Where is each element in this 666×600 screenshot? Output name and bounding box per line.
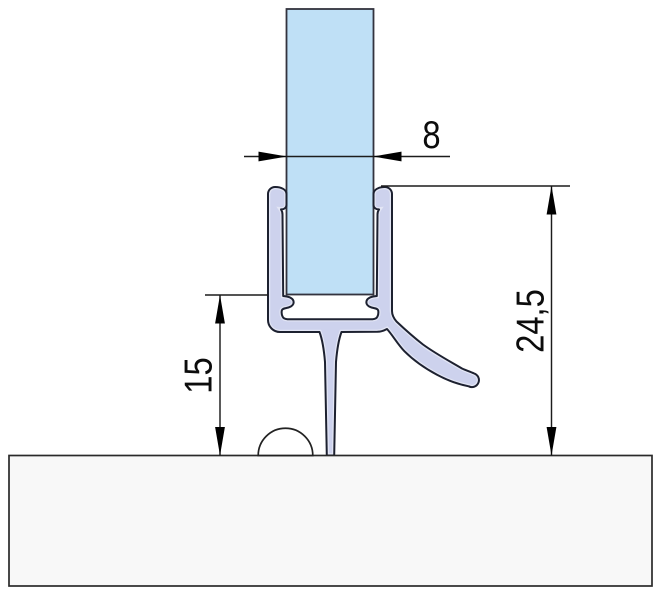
svg-text:8: 8	[422, 112, 440, 156]
svg-text:24,5: 24,5	[508, 289, 552, 353]
svg-text:15: 15	[176, 357, 220, 393]
